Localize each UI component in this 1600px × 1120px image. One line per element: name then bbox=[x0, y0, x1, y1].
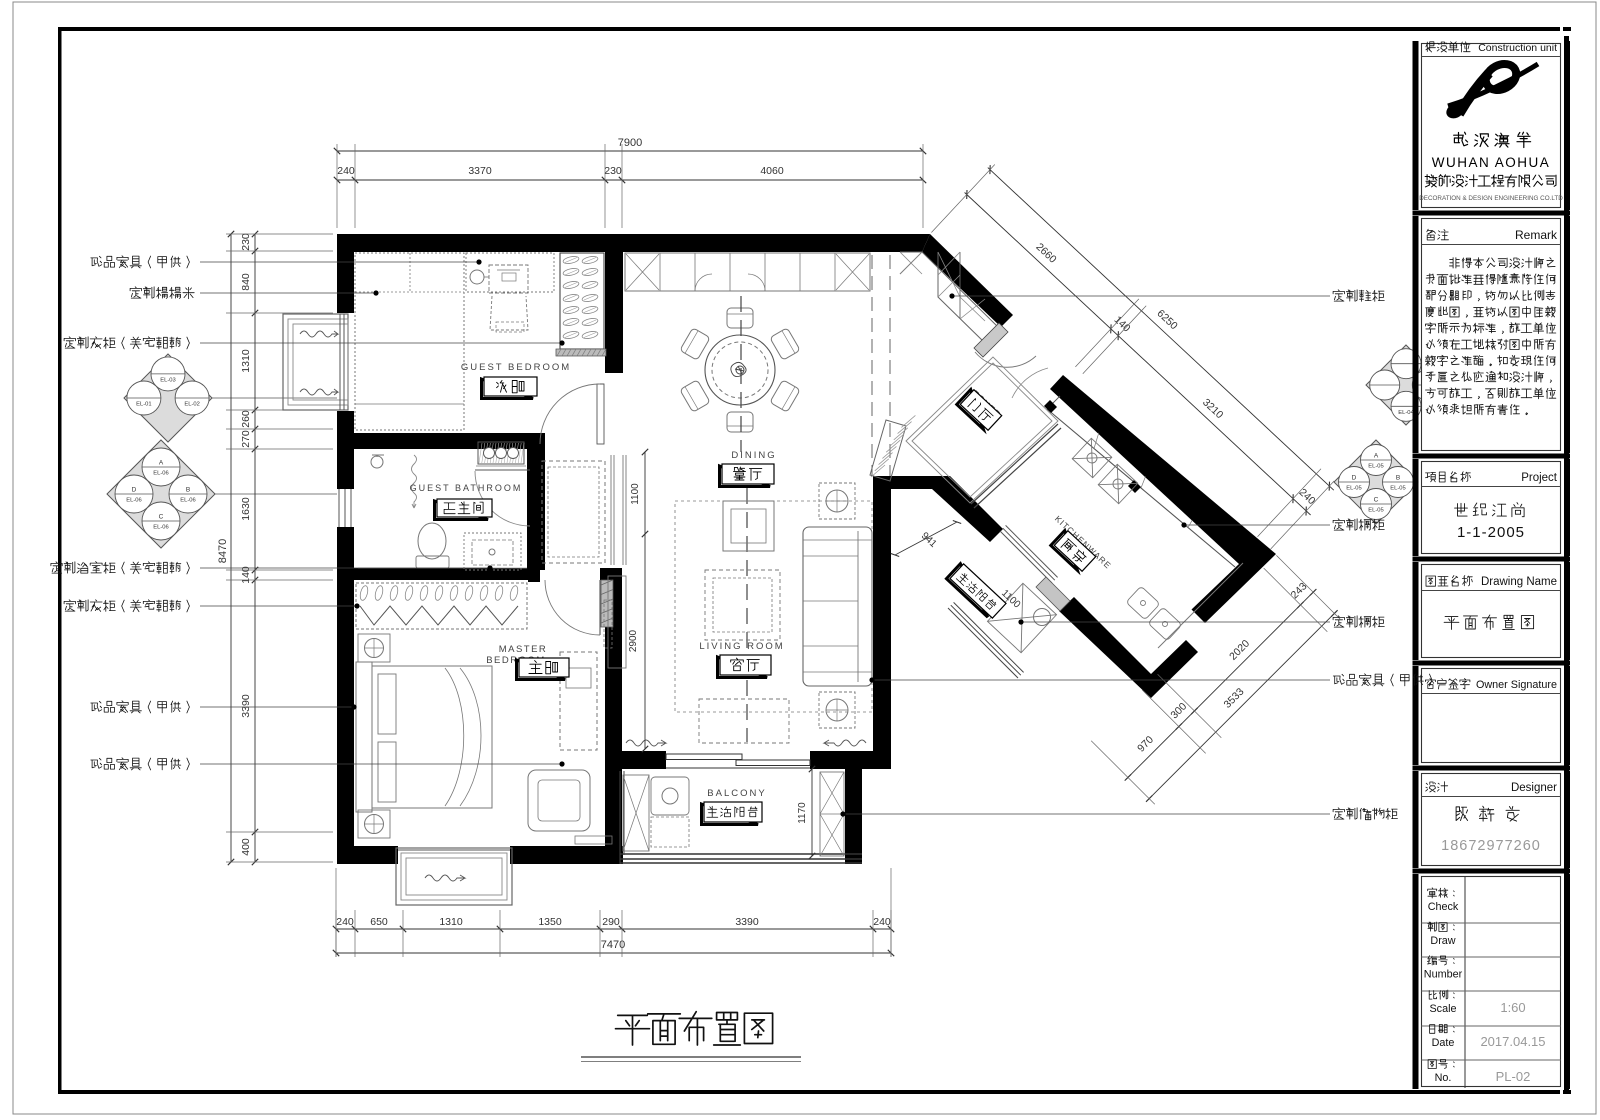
svg-text:D: D bbox=[132, 487, 137, 494]
svg-text:1310: 1310 bbox=[439, 916, 463, 928]
svg-text:EL-04: EL-04 bbox=[1398, 410, 1414, 416]
svg-text:260: 260 bbox=[240, 410, 252, 428]
svg-text:240: 240 bbox=[873, 916, 891, 928]
svg-text:8470: 8470 bbox=[217, 539, 229, 563]
svg-text:DECORATION & DESIGN ENGINEERIN: DECORATION & DESIGN ENGINEERING CO.LTD bbox=[1419, 195, 1563, 202]
svg-text:MASTER: MASTER bbox=[499, 644, 548, 655]
svg-text:EL-06: EL-06 bbox=[180, 498, 195, 504]
svg-text:1170: 1170 bbox=[797, 802, 808, 824]
svg-text:C: C bbox=[1374, 497, 1379, 504]
svg-text:WUHAN AOHUA: WUHAN AOHUA bbox=[1432, 155, 1551, 170]
svg-text:18672977260: 18672977260 bbox=[1441, 838, 1541, 854]
svg-text:1310: 1310 bbox=[240, 349, 252, 373]
svg-text:LIVING ROOM: LIVING ROOM bbox=[699, 641, 784, 652]
svg-text:EL-06: EL-06 bbox=[153, 471, 168, 477]
svg-text:EL-05: EL-05 bbox=[1368, 508, 1383, 514]
svg-text:B: B bbox=[186, 487, 190, 494]
svg-text:1:60: 1:60 bbox=[1500, 1000, 1525, 1015]
svg-text:BALCONY: BALCONY bbox=[707, 788, 766, 799]
svg-text:240: 240 bbox=[336, 916, 354, 928]
svg-text:EL-02: EL-02 bbox=[184, 402, 199, 408]
svg-text:D: D bbox=[1352, 475, 1357, 482]
svg-text:B: B bbox=[1396, 475, 1400, 482]
svg-text:400: 400 bbox=[240, 838, 252, 856]
svg-text:EL-03: EL-03 bbox=[160, 377, 175, 383]
svg-text:840: 840 bbox=[240, 273, 252, 291]
svg-text:1100: 1100 bbox=[630, 483, 641, 505]
svg-text:Owner Signature: Owner Signature bbox=[1476, 679, 1557, 691]
svg-text:3390: 3390 bbox=[240, 694, 252, 718]
svg-text:EL-06: EL-06 bbox=[126, 498, 141, 504]
svg-text:140: 140 bbox=[240, 566, 252, 584]
svg-text:EL-05: EL-05 bbox=[1346, 486, 1361, 492]
svg-text:3370: 3370 bbox=[468, 165, 492, 177]
svg-text:Scale: Scale bbox=[1429, 1003, 1456, 1015]
svg-text:650: 650 bbox=[370, 916, 388, 928]
svg-text:Draw: Draw bbox=[1430, 935, 1455, 947]
svg-text:2017.04.15: 2017.04.15 bbox=[1480, 1034, 1545, 1049]
svg-text:230: 230 bbox=[604, 165, 622, 177]
svg-text:Designer: Designer bbox=[1511, 782, 1557, 794]
svg-text:Check: Check bbox=[1428, 901, 1459, 913]
svg-text:2900: 2900 bbox=[628, 629, 639, 652]
svg-text:PL-02: PL-02 bbox=[1496, 1069, 1531, 1084]
svg-text:Construction unit: Construction unit bbox=[1478, 42, 1557, 54]
svg-text:GUEST BEDROOM: GUEST BEDROOM bbox=[461, 362, 571, 373]
svg-text:Drawing Name: Drawing Name bbox=[1481, 576, 1557, 588]
svg-text:A: A bbox=[1374, 453, 1379, 460]
svg-text:A: A bbox=[159, 460, 164, 467]
svg-text:3390: 3390 bbox=[735, 916, 759, 928]
svg-text:EL-06: EL-06 bbox=[153, 525, 168, 531]
svg-text:Number: Number bbox=[1424, 969, 1463, 981]
svg-text:1350: 1350 bbox=[538, 916, 562, 928]
svg-text:1630: 1630 bbox=[240, 497, 252, 521]
svg-text:290: 290 bbox=[602, 916, 620, 928]
svg-text:230: 230 bbox=[240, 233, 252, 251]
svg-text:270: 270 bbox=[240, 430, 252, 448]
svg-text:EL-05: EL-05 bbox=[1390, 486, 1405, 492]
svg-text:Remark: Remark bbox=[1515, 228, 1558, 242]
svg-text:C: C bbox=[159, 514, 164, 521]
svg-text:DINING: DINING bbox=[731, 450, 776, 461]
svg-text:EL-01: EL-01 bbox=[136, 402, 151, 408]
svg-text:GUEST BATHROOM: GUEST BATHROOM bbox=[410, 483, 523, 493]
svg-text:1-1-2005: 1-1-2005 bbox=[1457, 524, 1525, 541]
svg-text:No.: No. bbox=[1435, 1072, 1452, 1084]
svg-text:7900: 7900 bbox=[618, 137, 642, 149]
svg-text:Date: Date bbox=[1432, 1037, 1455, 1049]
svg-text:240: 240 bbox=[337, 165, 355, 177]
svg-text:4060: 4060 bbox=[760, 165, 784, 177]
svg-text:7470: 7470 bbox=[601, 939, 625, 951]
svg-text:EL-05: EL-05 bbox=[1368, 464, 1383, 470]
svg-text:Project: Project bbox=[1521, 472, 1558, 484]
